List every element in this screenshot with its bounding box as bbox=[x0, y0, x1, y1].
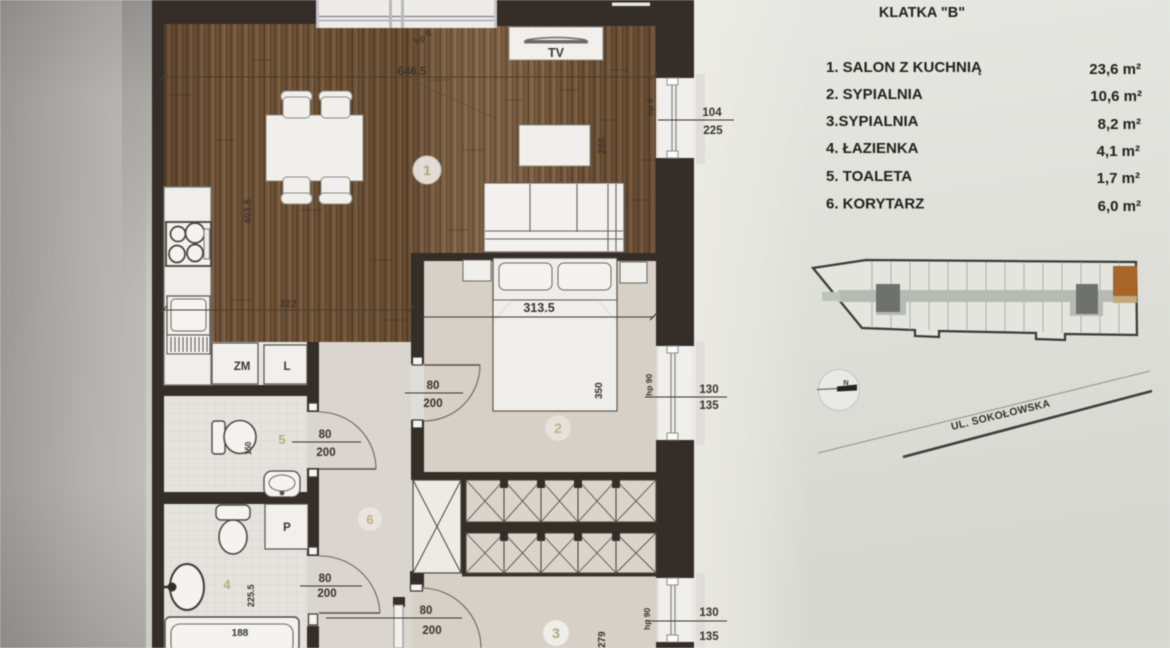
svg-text:130: 130 bbox=[699, 607, 718, 619]
svg-text:279: 279 bbox=[597, 631, 608, 648]
svg-text:2: 2 bbox=[554, 420, 562, 436]
svg-text:6: 6 bbox=[366, 512, 373, 527]
svg-text:hp 0: hp 0 bbox=[645, 98, 655, 116]
svg-text:135: 135 bbox=[699, 400, 719, 412]
svg-text:322: 322 bbox=[280, 299, 297, 310]
svg-text:4,1 m²: 4,1 m² bbox=[1097, 143, 1140, 160]
svg-text:6,0 m²: 6,0 m² bbox=[1098, 198, 1141, 215]
svg-text:104: 104 bbox=[702, 107, 722, 119]
svg-text:188: 188 bbox=[232, 628, 249, 639]
svg-text:200: 200 bbox=[423, 398, 442, 410]
svg-text:313.5: 313.5 bbox=[523, 301, 554, 315]
svg-text:5. TOALETA: 5. TOALETA bbox=[826, 168, 912, 185]
svg-text:10,6 m²: 10,6 m² bbox=[1090, 88, 1142, 105]
svg-text:6. KORYTARZ: 6. KORYTARZ bbox=[826, 196, 924, 213]
svg-text:1,7 m²: 1,7 m² bbox=[1097, 170, 1140, 187]
svg-text:286: 286 bbox=[597, 137, 608, 154]
svg-text:ZM: ZM bbox=[234, 361, 251, 373]
svg-text:hp 90: hp 90 bbox=[642, 608, 652, 630]
svg-text:130: 130 bbox=[699, 384, 718, 396]
svg-text:1. SALON Z KUCHNIĄ: 1. SALON Z KUCHNIĄ bbox=[826, 59, 982, 76]
svg-text:23,6 m²: 23,6 m² bbox=[1089, 61, 1141, 78]
svg-text:200: 200 bbox=[422, 625, 441, 637]
svg-text:150: 150 bbox=[244, 441, 253, 455]
svg-text:hp 90: hp 90 bbox=[644, 374, 654, 396]
svg-text:135: 135 bbox=[699, 631, 719, 643]
svg-text:80: 80 bbox=[319, 429, 332, 441]
svg-text:N: N bbox=[843, 378, 848, 387]
svg-text:80: 80 bbox=[427, 380, 440, 392]
svg-text:1: 1 bbox=[423, 162, 431, 178]
svg-text:646.5: 646.5 bbox=[398, 66, 427, 78]
svg-text:L: L bbox=[283, 361, 290, 373]
svg-text:TV: TV bbox=[548, 46, 565, 60]
svg-text:225: 225 bbox=[703, 125, 723, 137]
svg-text:350: 350 bbox=[594, 382, 605, 399]
svg-text:200: 200 bbox=[317, 588, 336, 600]
svg-text:225.5: 225.5 bbox=[246, 584, 256, 607]
svg-text:200: 200 bbox=[316, 447, 335, 459]
svg-text:KLATKA "B": KLATKA "B" bbox=[879, 5, 965, 21]
svg-text:3: 3 bbox=[552, 625, 560, 641]
svg-text:3.SYPIALNIA: 3.SYPIALNIA bbox=[826, 113, 919, 130]
svg-text:403.5: 403.5 bbox=[243, 199, 254, 224]
svg-text:80: 80 bbox=[319, 573, 332, 585]
svg-text:2. SYPIALNIA: 2. SYPIALNIA bbox=[826, 86, 923, 103]
svg-text:80: 80 bbox=[420, 605, 433, 617]
svg-text:4. ŁAZIENKA: 4. ŁAZIENKA bbox=[826, 140, 919, 157]
svg-text:5: 5 bbox=[278, 432, 285, 447]
svg-text:8,2 m²: 8,2 m² bbox=[1098, 116, 1141, 133]
svg-text:P: P bbox=[283, 522, 291, 534]
svg-text:4: 4 bbox=[223, 577, 231, 592]
